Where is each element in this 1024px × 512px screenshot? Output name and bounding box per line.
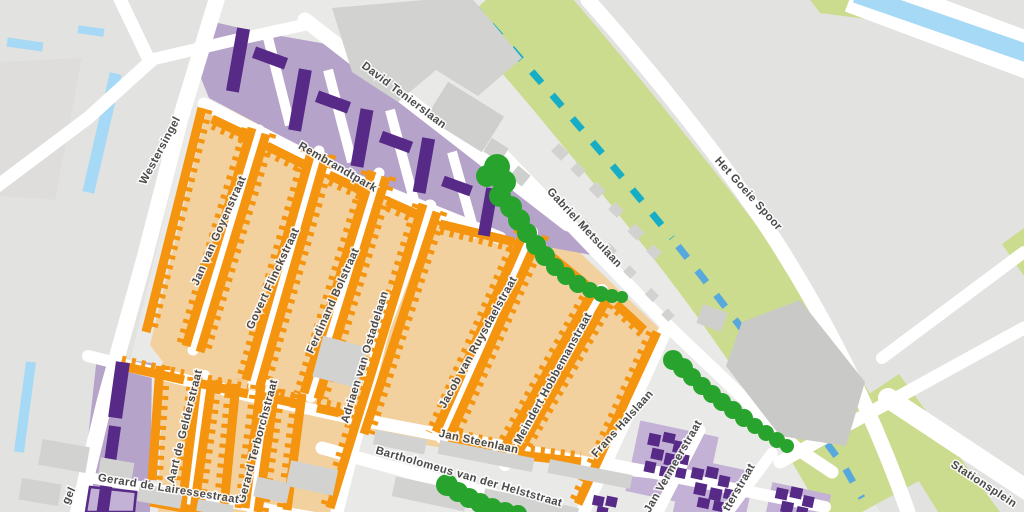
map-canvas[interactable]: Westersingel David Tenierslaan Rembrandt… <box>0 0 1024 512</box>
